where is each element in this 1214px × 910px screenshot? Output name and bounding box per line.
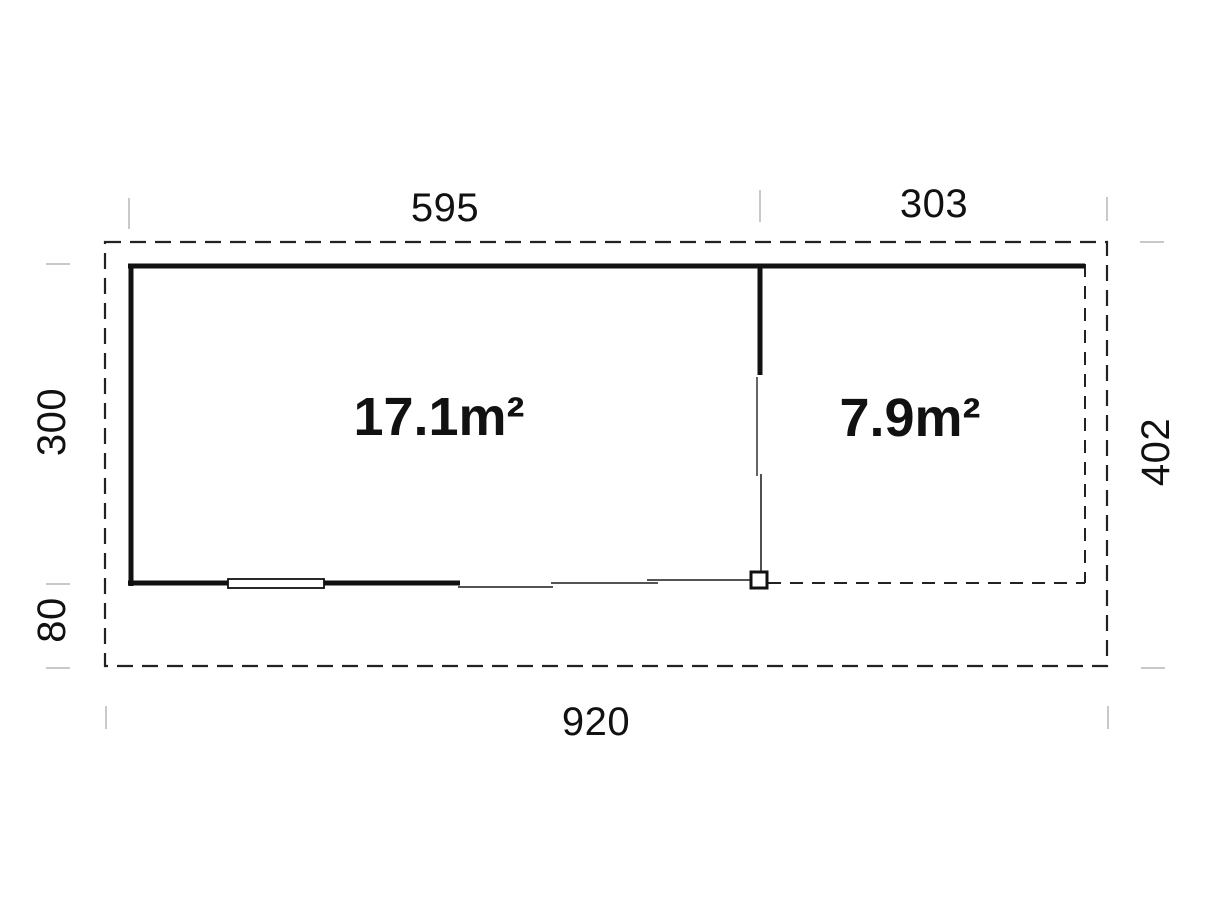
- room-area-label-main: 17.1m²: [353, 390, 524, 444]
- dimension-label-top-left: 595: [411, 188, 479, 228]
- window-symbol: [228, 579, 324, 588]
- dimension-label-bottom: 920: [562, 702, 630, 742]
- floor-plan-drawing: [0, 0, 1214, 910]
- dimension-label-left-lower: 80: [32, 597, 72, 643]
- dimension-label-top-right: 303: [900, 184, 968, 224]
- dimension-label-right: 402: [1136, 418, 1176, 486]
- room-area-label-terrace: 7.9m²: [839, 391, 980, 445]
- corner-post: [751, 572, 767, 588]
- outer-dashed-boundary: [105, 242, 1107, 666]
- floor-plan-canvas: 595 303 300 80 402 920 17.1m² 7.9m²: [0, 0, 1214, 910]
- dimension-label-left-upper: 300: [32, 388, 72, 456]
